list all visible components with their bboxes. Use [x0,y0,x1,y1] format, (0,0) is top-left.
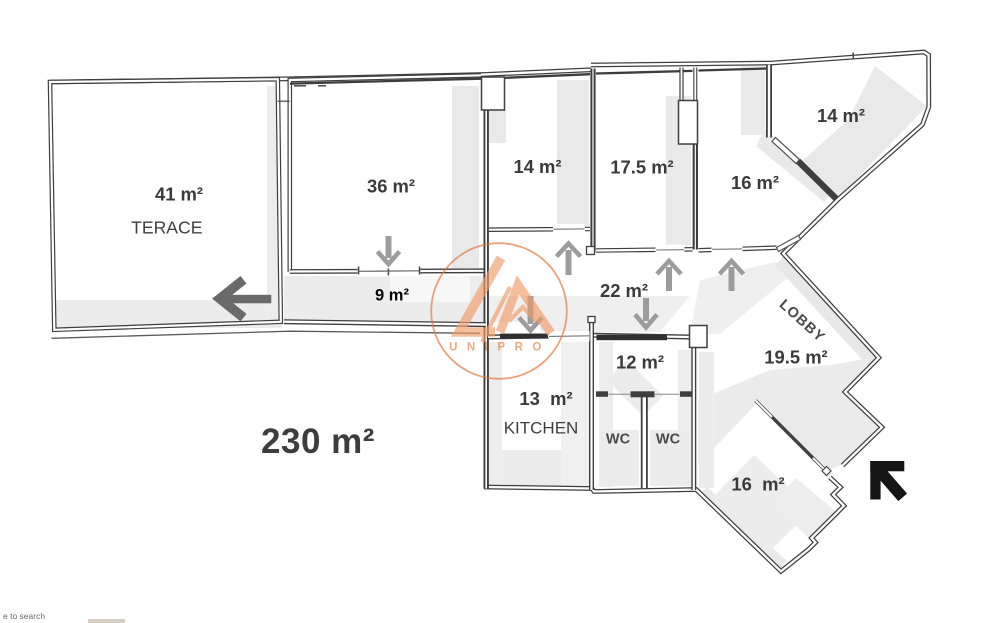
svg-text:9 m²: 9 m² [375,287,409,305]
svg-text:14 m²: 14 m² [513,156,561,177]
svg-text:22 m²: 22 m² [600,280,648,301]
svg-text:e to search: e to search [3,611,45,621]
svg-text:14 m²: 14 m² [817,105,865,126]
svg-text:16 m²: 16 m² [731,172,779,193]
svg-text:WC: WC [606,432,631,448]
svg-text:KITCHEN: KITCHEN [504,419,579,438]
svg-text:WC: WC [656,432,681,448]
svg-text:230 m²: 230 m² [261,422,375,461]
svg-text:13 m²: 13 m² [519,388,572,409]
svg-text:17.5 m²: 17.5 m² [610,157,673,178]
svg-text:TERACE: TERACE [131,218,202,238]
svg-text:UNIPRO: UNIPRO [449,342,551,354]
svg-text:12 m²: 12 m² [616,352,664,373]
svg-text:19.5 m²: 19.5 m² [764,347,827,368]
svg-text:36 m²: 36 m² [367,176,415,197]
svg-text:16 m²: 16 m² [731,474,784,495]
svg-text:41 m²: 41 m² [155,184,203,205]
